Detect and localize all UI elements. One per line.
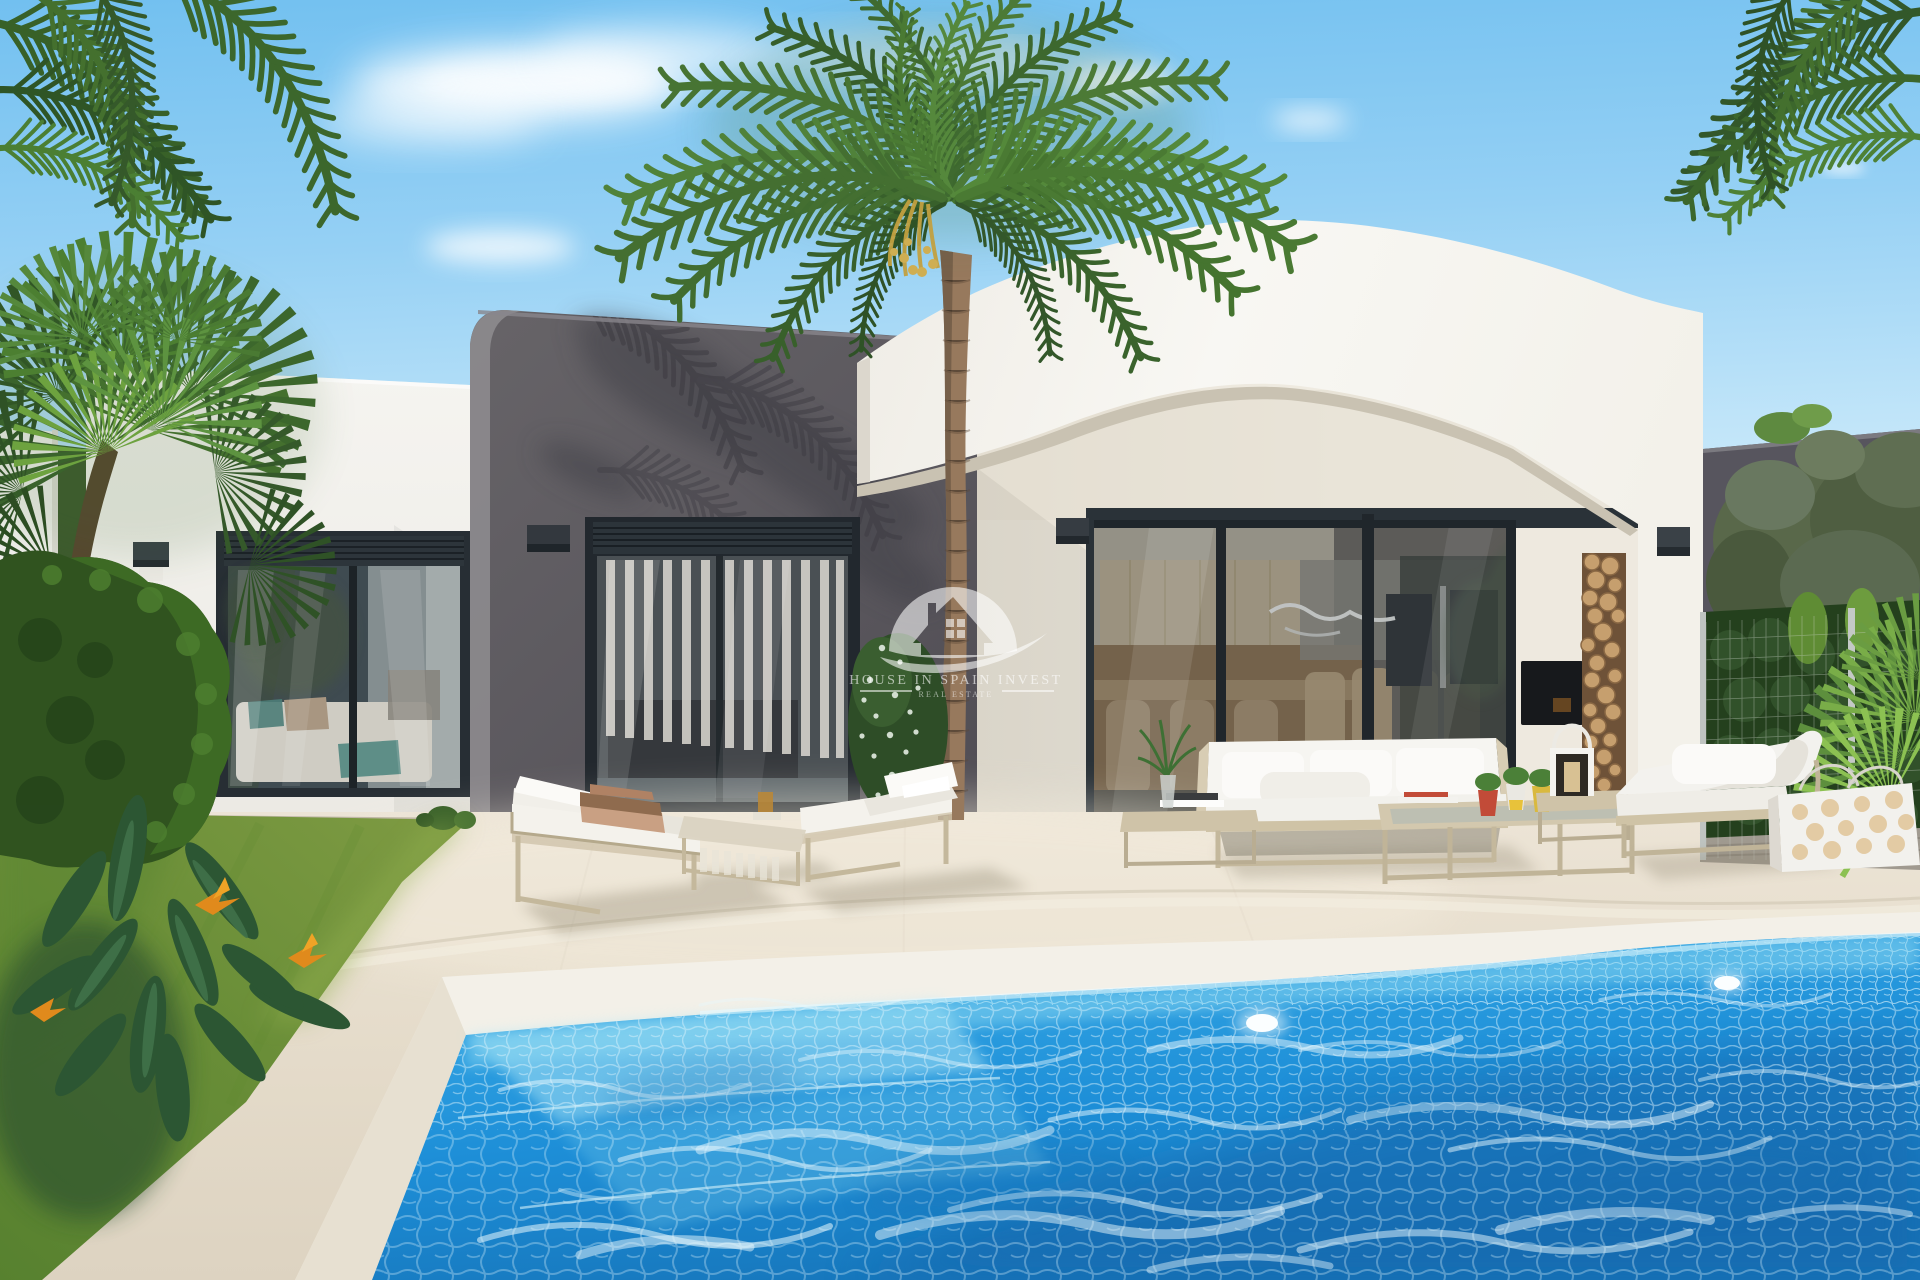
svg-text:HOUSE IN SPAIN INVEST: HOUSE IN SPAIN INVEST xyxy=(849,673,1062,688)
svg-text:REAL ESTATE: REAL ESTATE xyxy=(918,690,993,699)
